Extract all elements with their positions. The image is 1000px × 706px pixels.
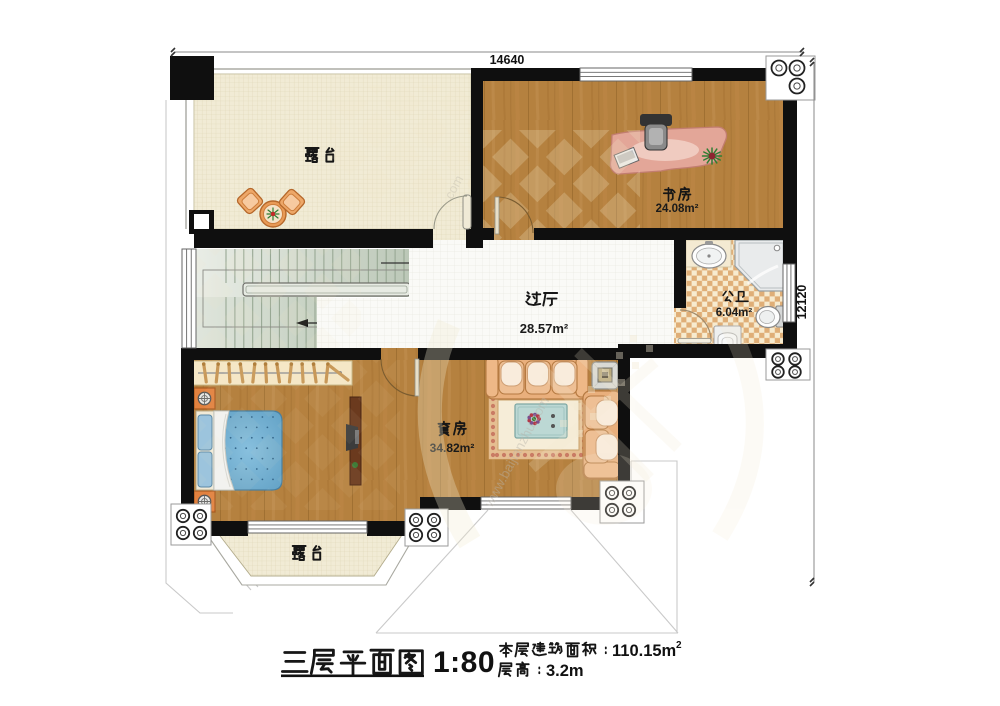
svg-text:12120: 12120 [795,285,809,320]
svg-text:24.08m²: 24.08m² [656,203,699,215]
svg-text:6.04m²: 6.04m² [716,307,753,319]
svg-text:2: 2 [676,640,682,651]
svg-text:28.57m²: 28.57m² [520,321,569,336]
svg-text:14640: 14640 [490,53,525,67]
svg-text:3.2m: 3.2m [546,662,584,680]
svg-text:110.15m: 110.15m [612,642,676,660]
svg-text:1:80: 1:80 [433,646,495,679]
